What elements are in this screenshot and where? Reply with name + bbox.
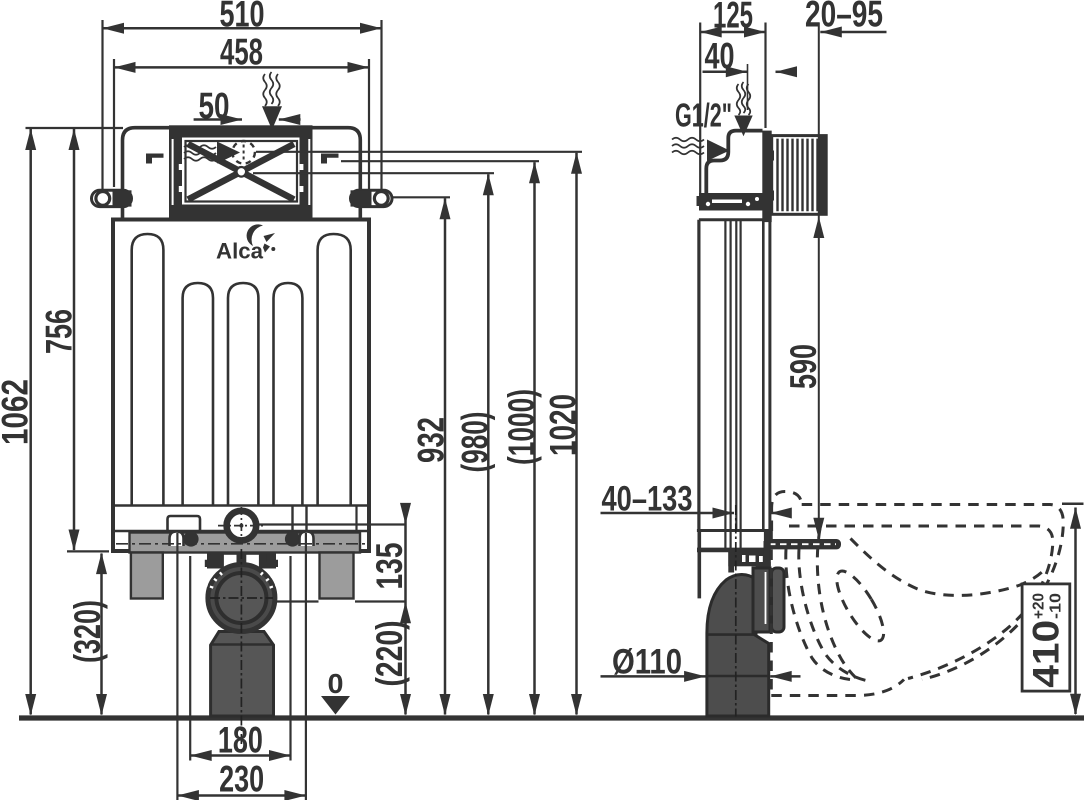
svg-text:125: 125 bbox=[713, 0, 753, 36]
svg-text:410: 410 bbox=[1026, 620, 1067, 688]
svg-text:0: 0 bbox=[328, 668, 344, 699]
svg-text:50: 50 bbox=[199, 86, 230, 127]
svg-text:510: 510 bbox=[220, 0, 265, 35]
svg-text:G1/2": G1/2" bbox=[675, 97, 732, 134]
svg-text:1020: 1020 bbox=[543, 394, 584, 456]
svg-text:Ø110: Ø110 bbox=[612, 643, 682, 682]
svg-text:756: 756 bbox=[39, 309, 80, 354]
svg-text:135: 135 bbox=[369, 543, 410, 590]
svg-text:458: 458 bbox=[220, 32, 263, 73]
svg-text:20–95: 20–95 bbox=[805, 0, 883, 35]
svg-text:40: 40 bbox=[705, 36, 735, 77]
svg-text:(980): (980) bbox=[455, 412, 496, 473]
svg-text:230: 230 bbox=[219, 759, 264, 800]
svg-text:(220): (220) bbox=[369, 621, 410, 687]
svg-text:+20: +20 bbox=[1031, 593, 1048, 619]
svg-text:932: 932 bbox=[411, 417, 452, 463]
svg-text:1062: 1062 bbox=[0, 379, 36, 445]
svg-text:(1000): (1000) bbox=[501, 389, 542, 465]
svg-text:-10: -10 bbox=[1048, 593, 1065, 619]
svg-text:590: 590 bbox=[783, 344, 824, 389]
svg-text:180: 180 bbox=[218, 720, 263, 761]
svg-text:(320): (320) bbox=[67, 600, 108, 663]
svg-text:40–133: 40–133 bbox=[602, 480, 693, 519]
svg-text:Alca: Alca bbox=[216, 239, 264, 264]
